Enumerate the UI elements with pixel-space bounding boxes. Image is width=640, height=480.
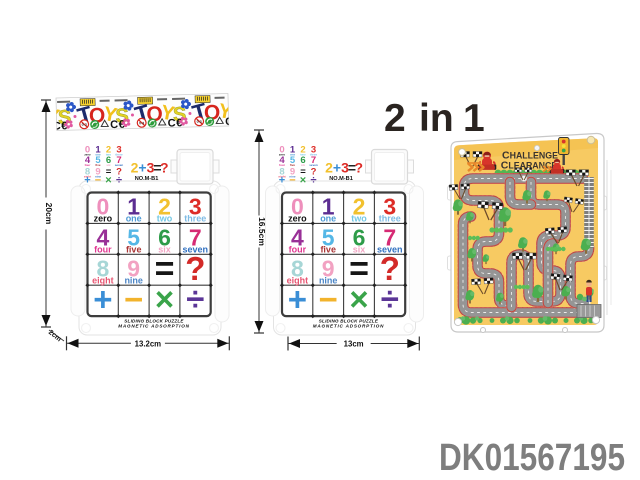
svg-text:four: four <box>94 245 112 255</box>
svg-text:+: + <box>138 160 146 176</box>
svg-text:five: five <box>320 245 336 255</box>
svg-text:one: one <box>126 214 142 224</box>
svg-text:MAGNETIC ADSORPTION: MAGNETIC ADSORPTION <box>118 324 189 329</box>
svg-text:+: + <box>333 160 341 176</box>
svg-text:in: in <box>419 97 454 140</box>
svg-text:13.2cm: 13.2cm <box>135 339 162 348</box>
svg-text:0-3: 0-3 <box>139 121 144 125</box>
svg-text:MAGNETIC ADSORPTION: MAGNETIC ADSORPTION <box>313 324 384 329</box>
svg-text:one: one <box>320 214 336 224</box>
svg-text:zero: zero <box>94 214 113 224</box>
svg-text:×: × <box>105 175 111 187</box>
svg-text:five: five <box>126 245 142 255</box>
svg-text:−: − <box>124 281 143 318</box>
svg-text:÷: ÷ <box>381 281 399 318</box>
svg-text:2: 2 <box>325 160 333 176</box>
svg-text:?: ? <box>160 160 169 176</box>
svg-text:?: ? <box>355 160 364 176</box>
svg-text:three: three <box>379 214 401 224</box>
svg-text:20cm: 20cm <box>44 203 54 225</box>
svg-text:÷: ÷ <box>116 175 122 187</box>
svg-text:×: × <box>349 281 368 318</box>
svg-text:×: × <box>155 281 174 318</box>
svg-text:+: + <box>279 175 285 187</box>
svg-text:two: two <box>157 214 173 224</box>
svg-text:−: − <box>289 175 295 187</box>
svg-text:two: two <box>351 214 367 224</box>
svg-text:three: three <box>184 214 206 224</box>
svg-text:÷: ÷ <box>186 281 204 318</box>
svg-text:+: + <box>288 281 307 318</box>
svg-text:2: 2 <box>384 97 406 140</box>
svg-text:four: four <box>289 245 307 255</box>
svg-text:NO.M-B1: NO.M-B1 <box>329 176 353 182</box>
svg-text:−: − <box>95 175 101 187</box>
svg-text:2: 2 <box>131 160 139 176</box>
svg-text:0-3: 0-3 <box>82 123 87 127</box>
svg-text:0-3: 0-3 <box>197 120 202 124</box>
svg-text:DK01567195: DK01567195 <box>439 437 625 479</box>
svg-text:C€: C€ <box>110 119 125 131</box>
svg-text:÷: ÷ <box>310 175 316 187</box>
svg-text:+: + <box>93 281 112 318</box>
svg-text:−: − <box>319 281 338 318</box>
svg-text:C€: C€ <box>168 117 183 129</box>
svg-text:1: 1 <box>463 97 485 140</box>
svg-text:zero: zero <box>288 214 307 224</box>
svg-text:+: + <box>84 175 90 187</box>
svg-text:×: × <box>300 175 306 187</box>
svg-text:NO.M-B1: NO.M-B1 <box>135 176 159 182</box>
svg-text:13cm: 13cm <box>344 340 364 349</box>
